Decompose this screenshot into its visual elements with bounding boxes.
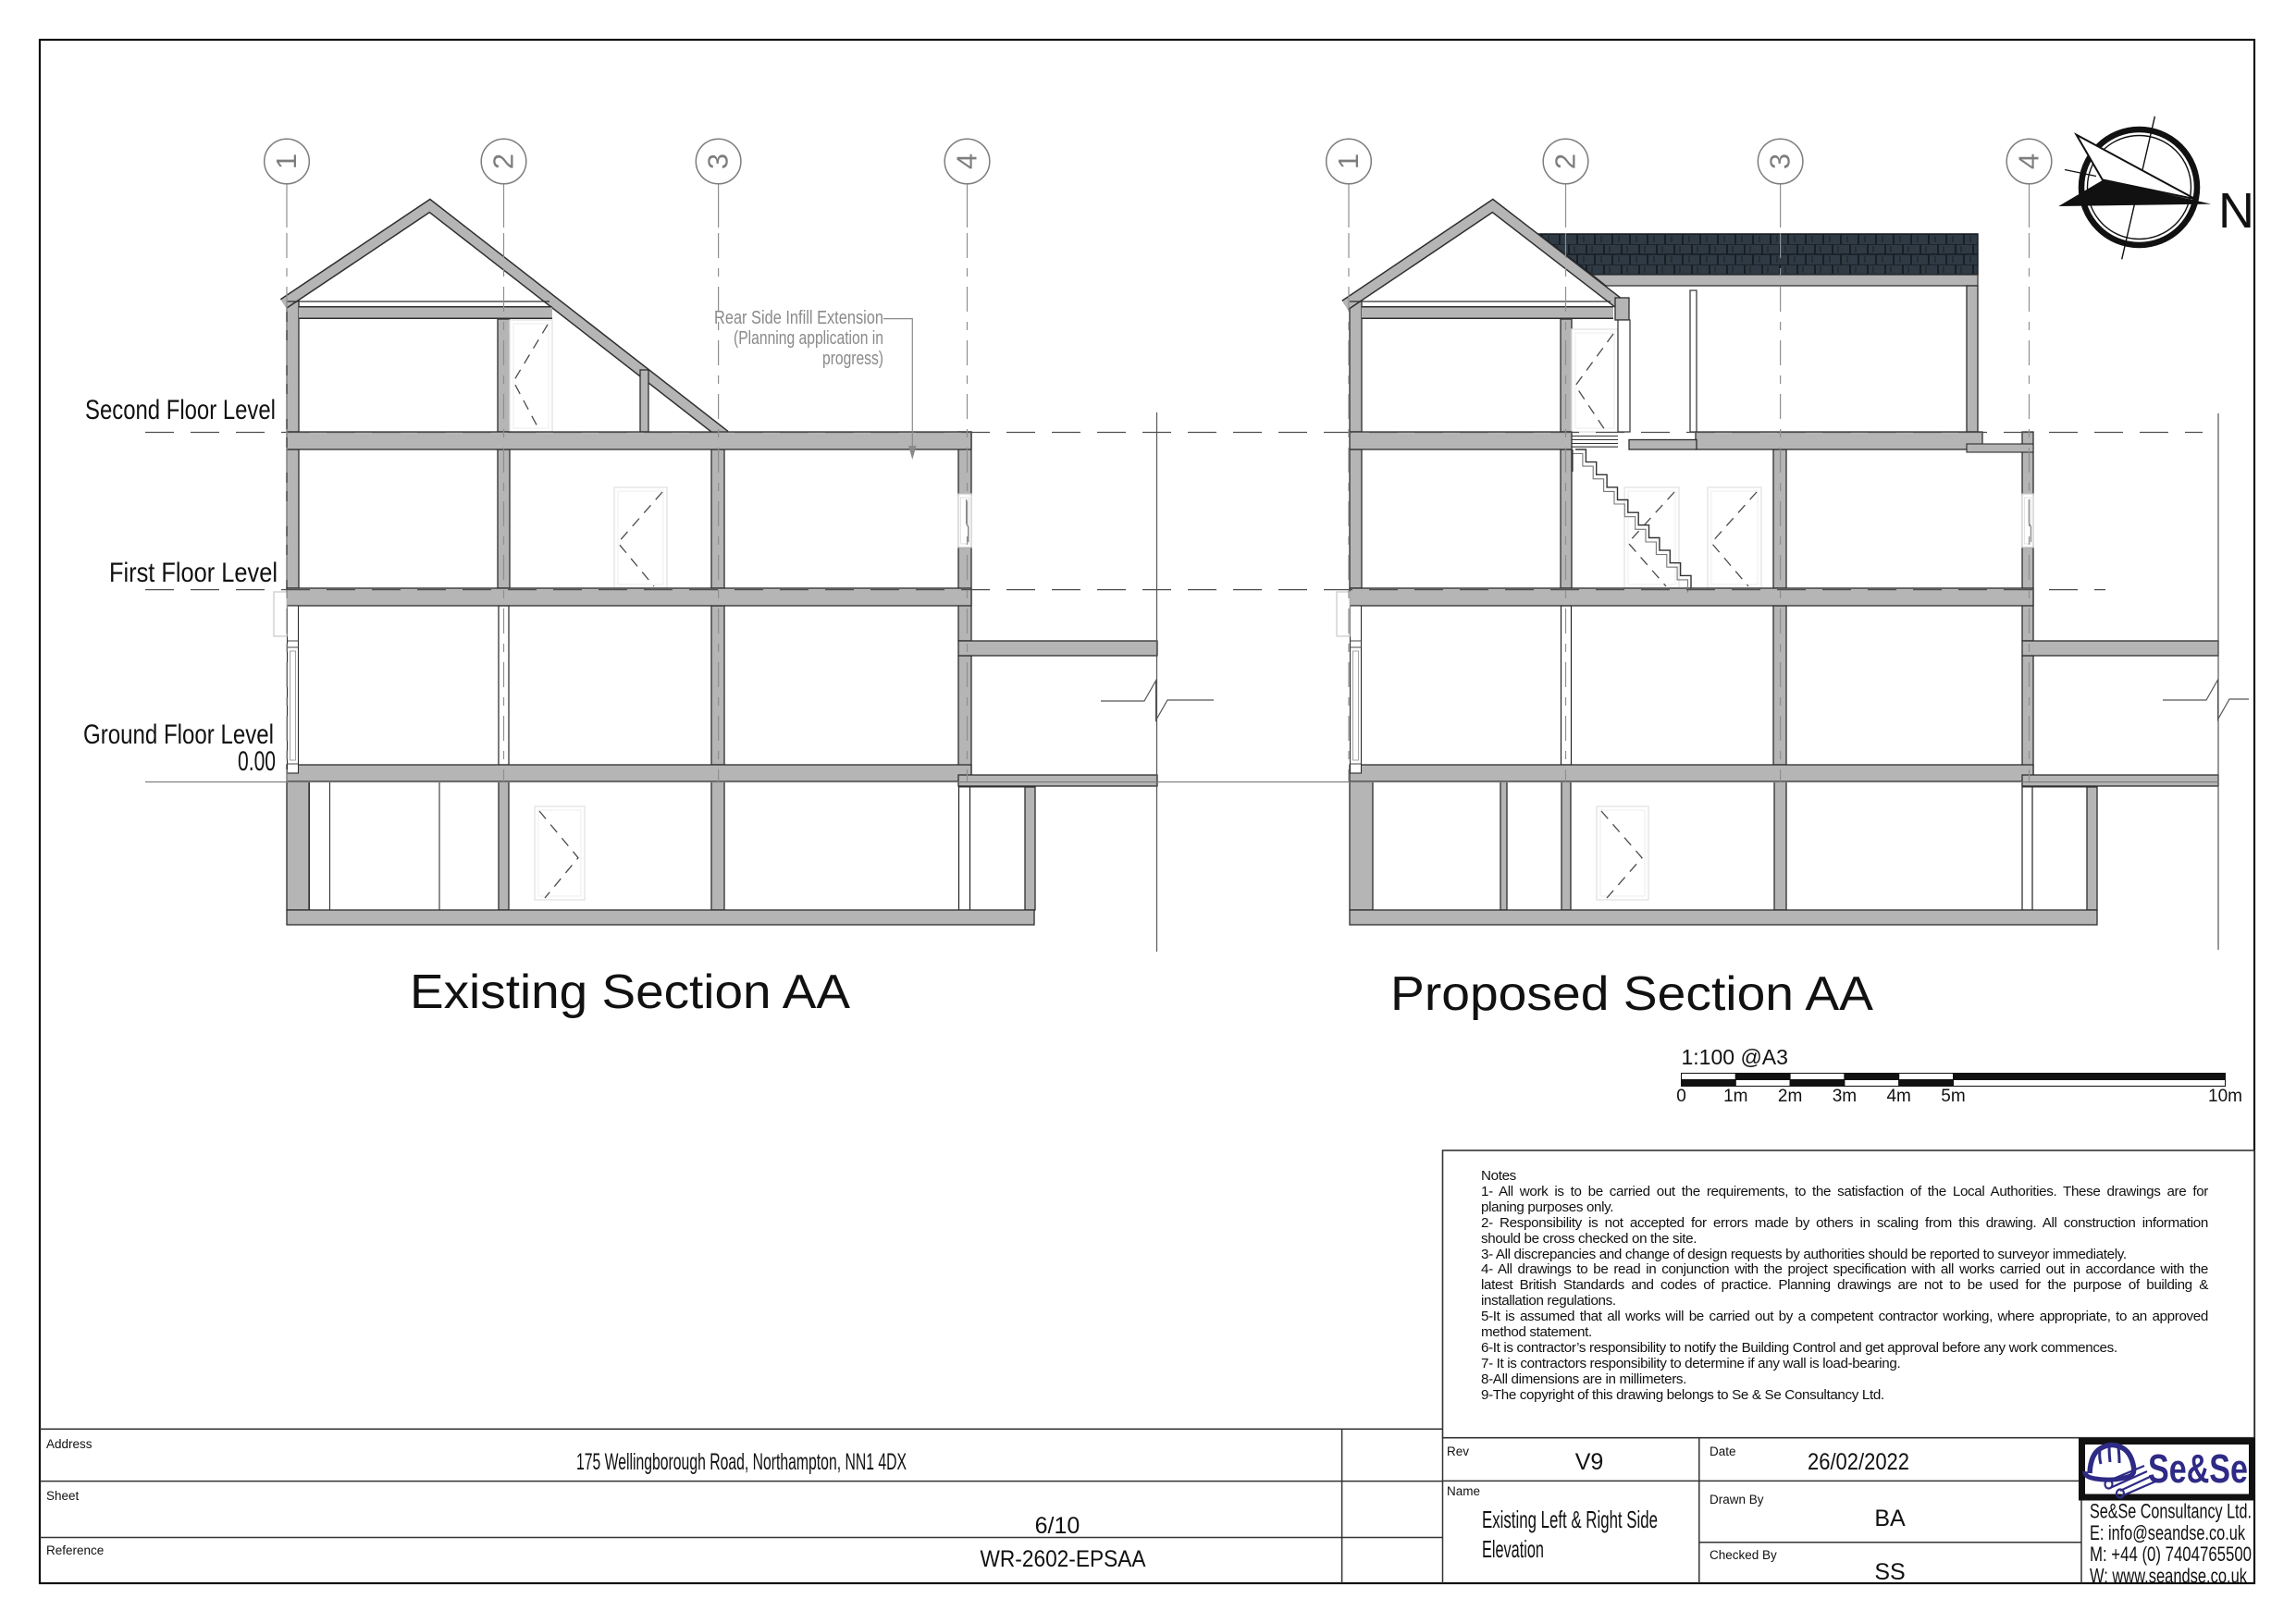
- svg-text:Se&Se: Se&Se: [2148, 1446, 2248, 1492]
- svg-text:1m: 1m: [1723, 1087, 1747, 1106]
- svg-text:V9: V9: [1575, 1449, 1604, 1475]
- svg-text:2m: 2m: [1778, 1087, 1802, 1106]
- svg-text:0.00: 0.00: [238, 746, 276, 777]
- svg-text:3: 3: [702, 154, 734, 169]
- svg-text:M: +44 (0) 7404765500: M: +44 (0) 7404765500: [2090, 1543, 2252, 1566]
- svg-text:Name: Name: [1447, 1484, 1480, 1498]
- svg-text:Rear Side Infill Extension: Rear Side Infill Extension: [714, 308, 883, 328]
- svg-text:Drawn By: Drawn By: [1710, 1493, 1764, 1506]
- svg-text:2: 2: [1549, 154, 1582, 169]
- svg-text:Reference: Reference: [46, 1543, 104, 1557]
- svg-text:Checked By: Checked By: [1710, 1548, 1777, 1562]
- svg-text:26/02/2022: 26/02/2022: [1808, 1449, 1909, 1475]
- svg-text:(Planning application in: (Planning application in: [734, 328, 883, 349]
- svg-text:4: 4: [951, 154, 983, 169]
- svg-text:10m: 10m: [2208, 1087, 2242, 1106]
- svg-text:3: 3: [1764, 154, 1796, 169]
- svg-text:Second Floor Level: Second Floor Level: [85, 395, 276, 425]
- svg-text:BA: BA: [1874, 1506, 1906, 1531]
- svg-text:0: 0: [1676, 1087, 1686, 1106]
- svg-text:Sheet: Sheet: [46, 1489, 80, 1503]
- svg-text:Elevation: Elevation: [1482, 1535, 1544, 1563]
- svg-text:1: 1: [1332, 154, 1364, 169]
- svg-text:N: N: [2218, 183, 2254, 239]
- svg-text:175 Wellingborough Road, North: 175 Wellingborough Road, Northampton, NN…: [576, 1449, 907, 1475]
- svg-text:Existing Section AA: Existing Section AA: [410, 965, 850, 1019]
- svg-text:Existing Left & Right Side: Existing Left & Right Side: [1482, 1506, 1658, 1533]
- svg-text:1:100 @A3: 1:100 @A3: [1682, 1045, 1788, 1069]
- svg-text:3m: 3m: [1833, 1087, 1857, 1106]
- svg-text:progress): progress): [822, 349, 883, 369]
- svg-text:1: 1: [270, 154, 302, 169]
- svg-text:4m: 4m: [1886, 1087, 1910, 1106]
- svg-text:Proposed Section AA: Proposed Section AA: [1390, 967, 1873, 1021]
- svg-text:Rev: Rev: [1447, 1445, 1469, 1458]
- svg-text:WR-2602-EPSAA: WR-2602-EPSAA: [981, 1546, 1146, 1572]
- svg-text:E: info@seandse.co.uk: E: info@seandse.co.uk: [2090, 1521, 2246, 1544]
- svg-text:4: 4: [2013, 154, 2045, 169]
- svg-text:W: www.seandse.co.uk: W: www.seandse.co.uk: [2090, 1564, 2248, 1587]
- svg-text:Date: Date: [1710, 1445, 1736, 1458]
- svg-text:2: 2: [488, 154, 520, 169]
- svg-text:5m: 5m: [1941, 1087, 1965, 1106]
- svg-text:SS: SS: [1874, 1559, 1905, 1585]
- svg-text:First Floor Level: First Floor Level: [109, 558, 278, 588]
- svg-text:Se&Se Consultancy Ltd.: Se&Se Consultancy Ltd.: [2090, 1500, 2252, 1523]
- svg-text:6/10: 6/10: [1035, 1513, 1080, 1539]
- svg-text:Address: Address: [46, 1437, 93, 1451]
